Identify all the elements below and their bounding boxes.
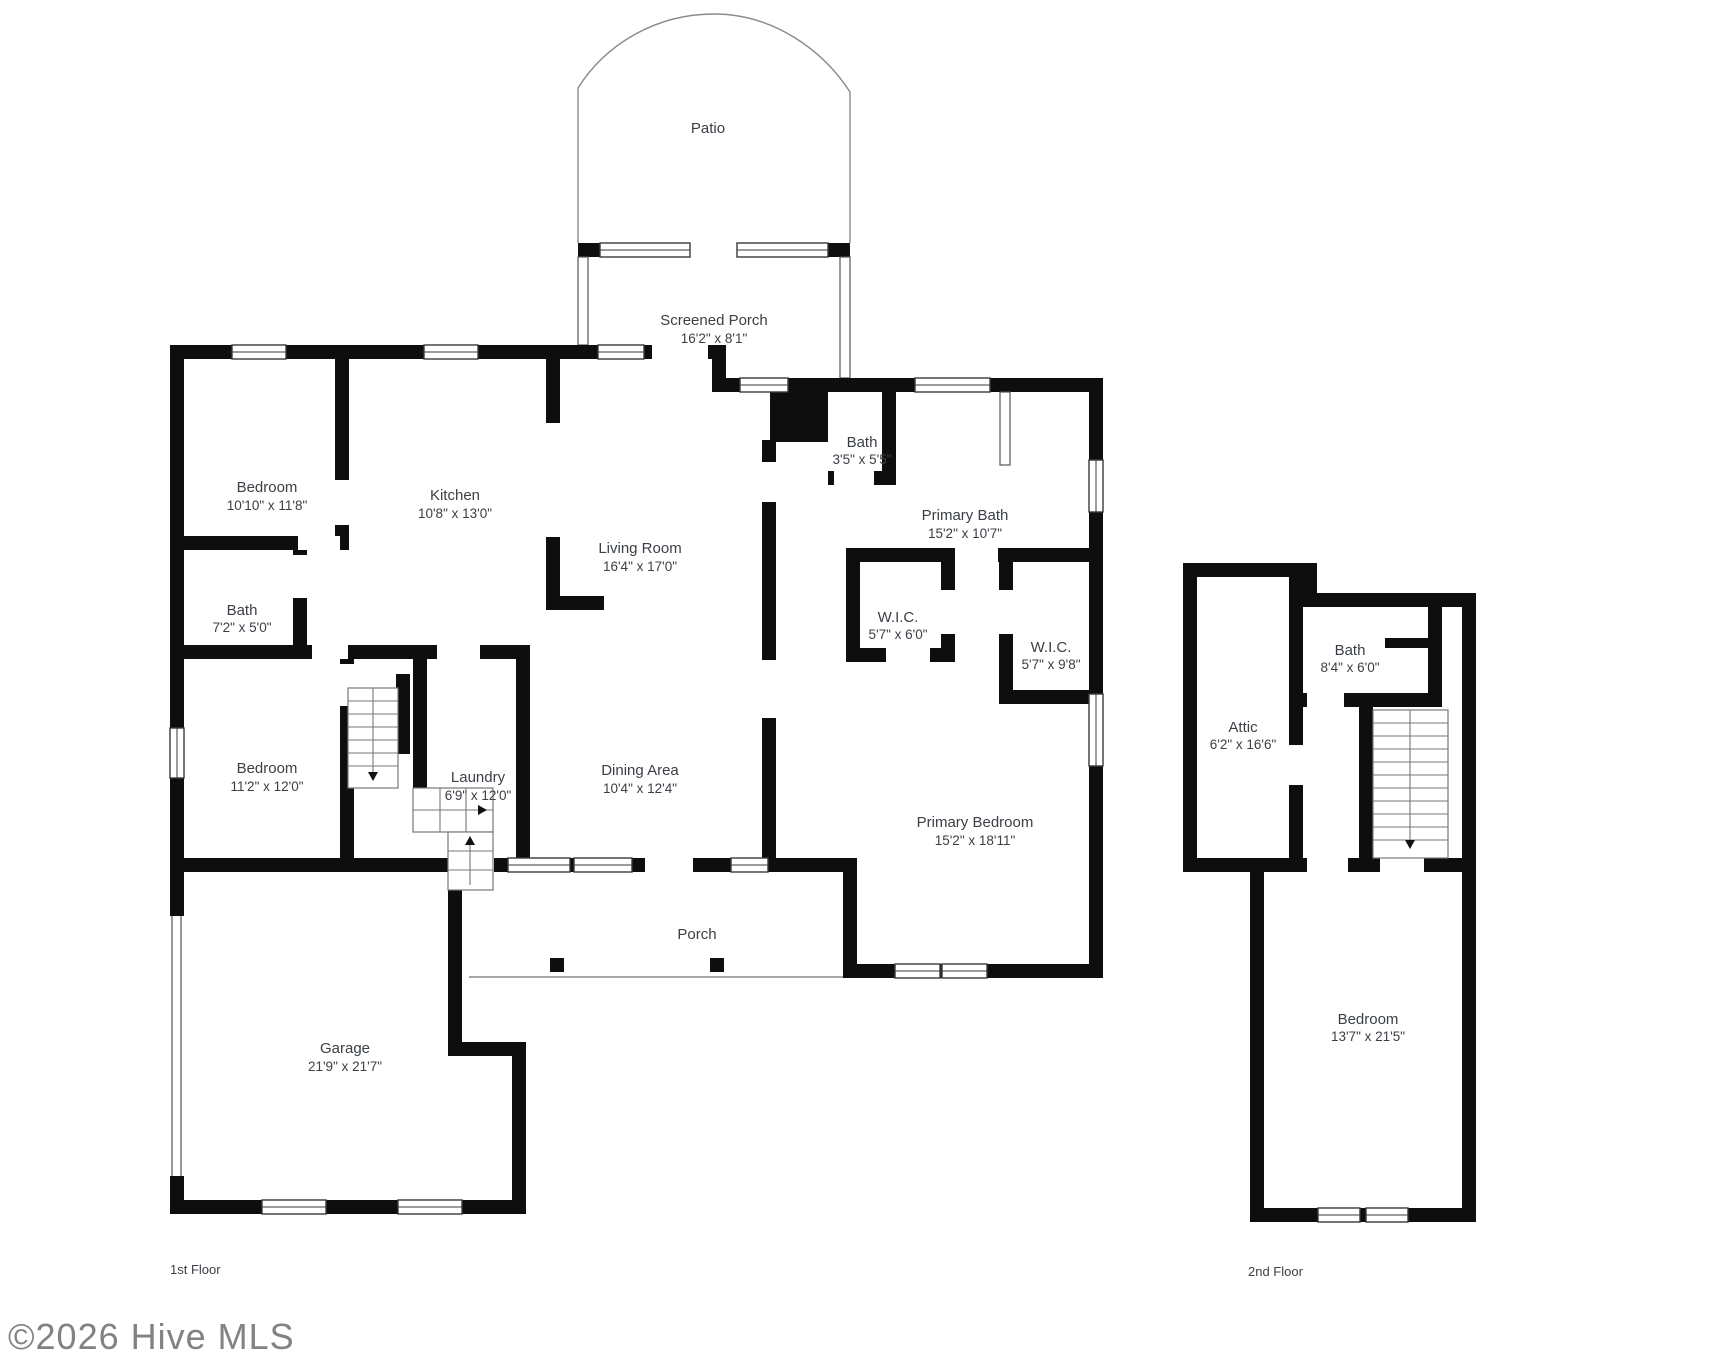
room-label-attic: Attic 6'2" x 16'6" bbox=[1210, 719, 1277, 752]
first-floor-walls bbox=[170, 345, 1103, 1214]
room-label-kitchen: Kitchen 10'8" x 13'0" bbox=[418, 487, 492, 521]
room-label-primary-bedroom: Primary Bedroom 15'2" x 18'11" bbox=[917, 814, 1034, 848]
wic1-dims: 5'7" x 6'0" bbox=[868, 627, 927, 642]
floor-plan-drawing: Patio Screened Porch 16'2" x 8'1" Bedroo… bbox=[0, 0, 1734, 1372]
second-floor-label: 2nd Floor bbox=[1248, 1264, 1304, 1279]
first-floor-label: 1st Floor bbox=[170, 1262, 221, 1277]
screened-porch-dims: 16'2" x 8'1" bbox=[681, 331, 748, 346]
bath-name: Bath bbox=[227, 602, 258, 619]
room-label-primary-bath: Primary Bath 15'2" x 10'7" bbox=[922, 507, 1009, 541]
room-label-bath: Bath 7'2" x 5'0" bbox=[212, 602, 271, 635]
garage-dims: 21'9" x 21'7" bbox=[308, 1059, 382, 1074]
wic1-name: W.I.C. bbox=[878, 609, 919, 626]
dining-name: Dining Area bbox=[601, 762, 679, 779]
patio-name: Patio bbox=[691, 120, 725, 137]
attic-dims: 6'2" x 16'6" bbox=[1210, 737, 1277, 752]
room-label-wic1: W.I.C. 5'7" x 6'0" bbox=[868, 609, 927, 642]
entry-steps bbox=[413, 788, 493, 890]
primary-bedroom-name: Primary Bedroom bbox=[917, 814, 1034, 831]
porch-name: Porch bbox=[677, 926, 716, 943]
bath-small-name: Bath bbox=[847, 434, 878, 451]
room-label-laundry: Laundry 6'9" x 12'0" bbox=[445, 769, 512, 803]
wic2-dims: 5'7" x 9'8" bbox=[1021, 657, 1080, 672]
first-floor-openings bbox=[170, 345, 1103, 1214]
room-label-living-room: Living Room 16'4" x 17'0" bbox=[598, 540, 681, 574]
primary-bath-dims: 15'2" x 10'7" bbox=[928, 526, 1002, 541]
living-room-name: Living Room bbox=[598, 540, 681, 557]
staircase-down bbox=[1373, 710, 1448, 858]
kitchen-name: Kitchen bbox=[430, 487, 480, 504]
bath-small-dims: 3'5" x 5'5" bbox=[832, 452, 891, 467]
bedroom-2f-name: Bedroom bbox=[1338, 1011, 1399, 1028]
wic2-name: W.I.C. bbox=[1031, 639, 1072, 656]
screened-porch-name: Screened Porch bbox=[660, 312, 768, 329]
front-porch-structure bbox=[469, 958, 843, 977]
room-label-bedroom-2f: Bedroom 13'7" x 21'5" bbox=[1331, 1011, 1405, 1044]
room-label-dining: Dining Area 10'4" x 12'4" bbox=[601, 762, 679, 796]
bath-2f-dims: 8'4" x 6'0" bbox=[1320, 660, 1379, 675]
room-label-bedroom2: Bedroom 11'2" x 12'0" bbox=[230, 760, 303, 794]
bath-dims: 7'2" x 5'0" bbox=[212, 620, 271, 635]
first-floor-labels: Patio Screened Porch 16'2" x 8'1" Bedroo… bbox=[170, 120, 1081, 1277]
primary-bedroom-dims: 15'2" x 18'11" bbox=[935, 833, 1016, 848]
bedroom1-name: Bedroom bbox=[237, 479, 298, 496]
room-label-screened-porch: Screened Porch 16'2" x 8'1" bbox=[660, 312, 768, 346]
mls-watermark: ©2026 Hive MLS bbox=[8, 1316, 295, 1358]
garage-name: Garage bbox=[320, 1040, 370, 1057]
room-label-garage: Garage 21'9" x 21'7" bbox=[308, 1040, 382, 1074]
bedroom2-name: Bedroom bbox=[237, 760, 298, 777]
dining-dims: 10'4" x 12'4" bbox=[603, 781, 677, 796]
floor-plan-page: Patio Screened Porch 16'2" x 8'1" Bedroo… bbox=[0, 0, 1734, 1372]
laundry-name: Laundry bbox=[451, 769, 506, 786]
bedroom-2f-dims: 13'7" x 21'5" bbox=[1331, 1029, 1405, 1044]
room-label-wic2: W.I.C. 5'7" x 9'8" bbox=[1021, 639, 1080, 672]
room-label-bedroom1: Bedroom 10'10" x 11'8" bbox=[227, 479, 308, 513]
primary-bath-name: Primary Bath bbox=[922, 507, 1009, 524]
bath-2f-name: Bath bbox=[1335, 642, 1366, 659]
room-label-porch: Porch bbox=[677, 926, 716, 943]
staircase-to-2nd-floor bbox=[348, 688, 398, 788]
room-label-bath-2f: Bath 8'4" x 6'0" bbox=[1320, 642, 1379, 675]
laundry-dims: 6'9" x 12'0" bbox=[445, 788, 512, 803]
room-label-patio: Patio bbox=[691, 120, 725, 137]
living-room-dims: 16'4" x 17'0" bbox=[603, 559, 677, 574]
attic-name: Attic bbox=[1228, 719, 1258, 736]
bedroom1-dims: 10'10" x 11'8" bbox=[227, 498, 308, 513]
bedroom2-dims: 11'2" x 12'0" bbox=[230, 779, 303, 794]
kitchen-dims: 10'8" x 13'0" bbox=[418, 506, 492, 521]
